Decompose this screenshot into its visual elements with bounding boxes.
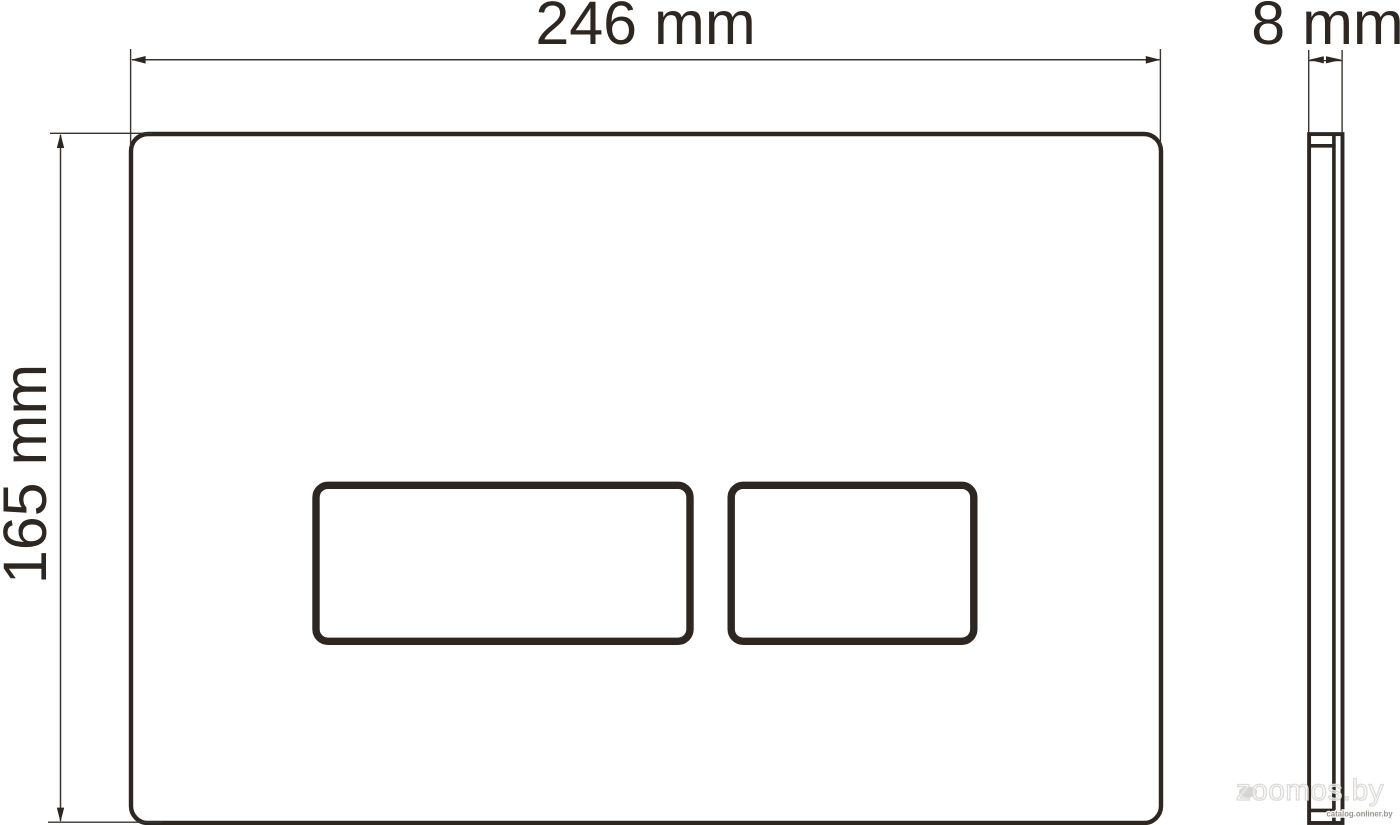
svg-text:8 mm: 8 mm — [1251, 0, 1400, 57]
svg-text:catalog.onliner.by: catalog.onliner.by — [1326, 810, 1393, 819]
svg-text:165 mm: 165 mm — [0, 364, 59, 584]
svg-text:246 mm: 246 mm — [535, 0, 755, 57]
svg-text:zoomos.by: zoomos.by — [1236, 774, 1384, 807]
